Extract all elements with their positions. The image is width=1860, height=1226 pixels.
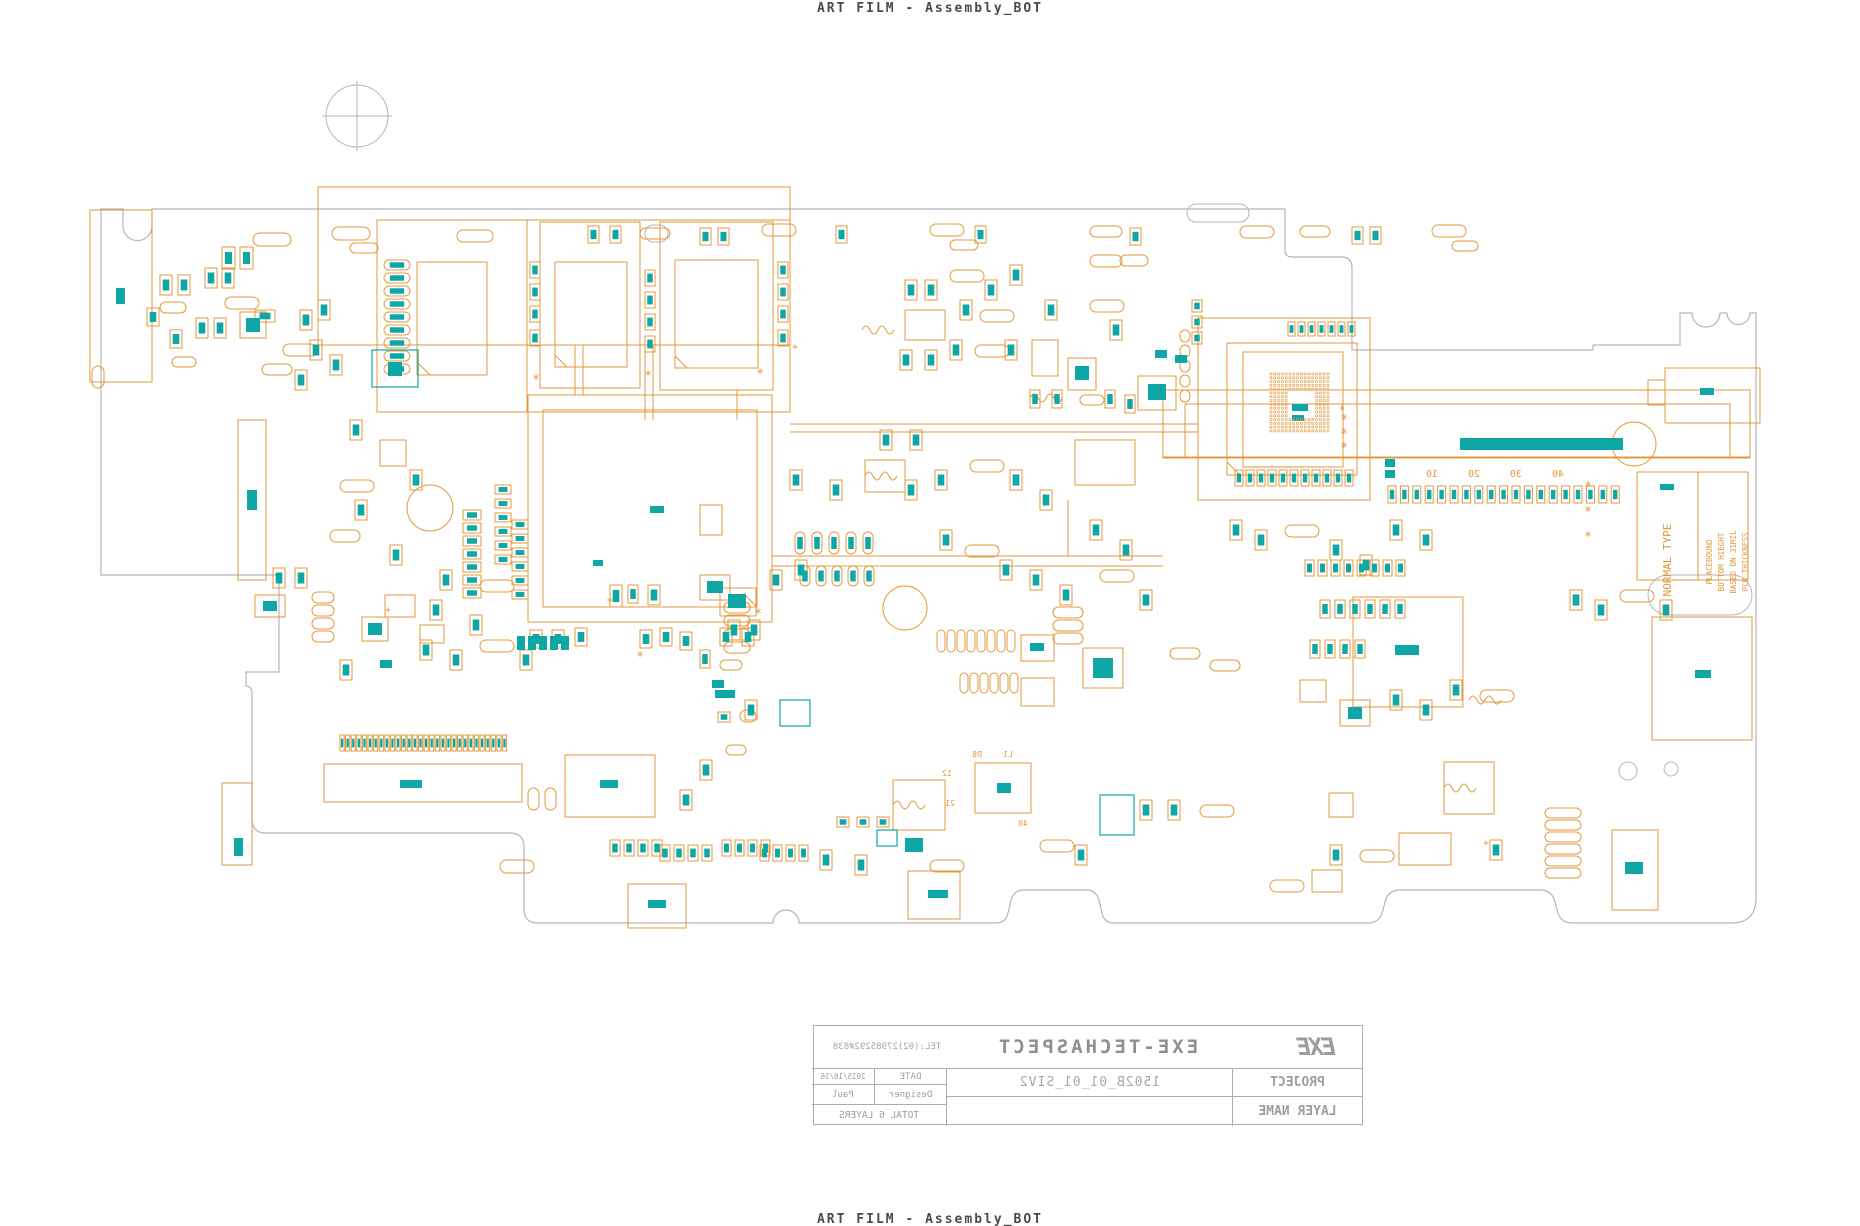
smd-pad <box>1310 325 1314 333</box>
bga-ball <box>1312 377 1314 379</box>
smd-pad <box>390 314 404 320</box>
smd-pad <box>715 690 735 698</box>
component-stadium <box>1053 607 1083 618</box>
smd-pad <box>390 366 404 372</box>
component-outline <box>865 460 905 492</box>
bga-ball <box>1278 430 1280 432</box>
smd-pad <box>797 537 803 549</box>
component-outline <box>1032 340 1058 376</box>
bga-ball <box>1316 415 1318 417</box>
smd-pad <box>390 275 404 281</box>
component-stadium <box>1053 620 1083 631</box>
smd-pad <box>1423 535 1430 546</box>
component-stadium <box>1210 660 1240 671</box>
bga-ball <box>1297 430 1299 432</box>
smd-pad <box>532 310 538 319</box>
origin-mark: + <box>1483 838 1489 849</box>
smd-pad <box>503 739 505 748</box>
bga-ball <box>1316 430 1318 432</box>
smd-pad <box>1354 231 1360 240</box>
component-outline-teal <box>877 830 897 846</box>
bga-ball <box>1274 373 1276 375</box>
component-stadium <box>1545 808 1581 818</box>
component-outline <box>1652 617 1752 740</box>
component-stadium <box>1180 390 1190 402</box>
bga-ball <box>1300 388 1302 390</box>
smd-pad <box>1563 490 1567 499</box>
component-stadium <box>1545 832 1581 842</box>
bga-ball <box>1293 373 1295 375</box>
bga-ball <box>1270 400 1272 402</box>
smd-pad <box>150 312 157 322</box>
bga-ball <box>1278 392 1280 394</box>
bga-ball <box>1323 411 1325 413</box>
bga-ball <box>1274 384 1276 386</box>
smd-pad <box>499 501 508 506</box>
smd-pad <box>814 537 820 549</box>
component-stadium <box>500 860 534 873</box>
bga-ball <box>1312 384 1314 386</box>
smd-pad <box>723 632 730 642</box>
bga-ball <box>1312 426 1314 428</box>
component-stadium <box>957 630 965 652</box>
assembly-asterisk: * <box>1584 505 1592 520</box>
component-stadium <box>960 673 968 693</box>
smd-pad <box>358 505 365 516</box>
bga-ball <box>1323 407 1325 409</box>
component-stadium <box>528 788 539 810</box>
smd-pad <box>662 849 668 858</box>
smd-pad <box>720 232 726 241</box>
bga-ball <box>1327 388 1329 390</box>
smd-pad <box>593 560 603 566</box>
component-stadium <box>980 673 988 693</box>
smd-pad <box>246 318 260 332</box>
origin-mark: + <box>792 342 798 353</box>
date-value: 2015/10/16 <box>812 1068 874 1084</box>
smd-pad <box>908 485 915 496</box>
smd-pad <box>408 739 410 748</box>
component-outline <box>905 310 945 340</box>
bga-ball <box>1319 400 1321 402</box>
bga-ball <box>1281 415 1283 417</box>
smd-pad <box>1340 325 1344 333</box>
smd-pad <box>1395 645 1419 655</box>
smd-pad <box>1382 604 1388 614</box>
smd-pad <box>413 475 420 486</box>
smd-pad <box>745 632 752 642</box>
smd-pad <box>1660 484 1674 490</box>
bga-ball <box>1281 419 1283 421</box>
smd-pad <box>943 535 950 546</box>
bga-ball <box>1293 426 1295 428</box>
bga-ball <box>1270 384 1272 386</box>
board-hole <box>1664 762 1678 776</box>
smd-pad <box>1320 325 1324 333</box>
smd-pad <box>1127 399 1133 409</box>
smd-pad <box>1043 495 1050 506</box>
component-outline <box>324 764 522 802</box>
bga-ball <box>1300 377 1302 379</box>
smd-pad <box>1385 470 1395 478</box>
smd-pad <box>802 571 808 582</box>
assembly-asterisk: * <box>636 650 644 665</box>
smd-pad <box>1346 564 1351 573</box>
component-stadium <box>950 270 984 282</box>
component-stadium <box>312 631 334 642</box>
smd-pad <box>1281 474 1285 483</box>
company-phone: TEL:(02)27985292#838 <box>816 1026 958 1068</box>
project-label: PROJECT <box>1232 1068 1362 1096</box>
smd-pad <box>453 739 455 748</box>
bga-ball <box>1281 411 1283 413</box>
smd-pad <box>321 305 328 316</box>
bga-ball <box>1278 373 1280 375</box>
smd-pad <box>1348 707 1362 719</box>
smd-pad <box>1350 325 1354 333</box>
component-stadium <box>1452 241 1478 251</box>
bga-ball <box>1285 381 1287 383</box>
smd-pad <box>442 739 444 748</box>
smd-pad <box>234 838 243 856</box>
trace-lines-layer <box>417 345 1750 607</box>
smd-pad <box>928 285 935 296</box>
smd-pad <box>1333 850 1340 861</box>
smd-pad <box>517 636 525 650</box>
bga-ball <box>1293 422 1295 424</box>
smd-pad <box>903 355 910 366</box>
smd-pad <box>1327 644 1333 654</box>
component-stadium <box>172 357 196 367</box>
bga-ball <box>1278 407 1280 409</box>
bga-ball <box>1323 381 1325 383</box>
bga-ball <box>1327 411 1329 413</box>
smd-pad <box>532 334 538 343</box>
bga-ball <box>1278 415 1280 417</box>
smd-pad <box>247 490 257 510</box>
smd-pad <box>390 288 404 294</box>
bga-ball <box>1274 400 1276 402</box>
smd-pad <box>630 589 636 599</box>
component-stadium <box>1000 673 1008 693</box>
bga-ball <box>1327 419 1329 421</box>
component-stadium <box>1090 300 1124 312</box>
smd-pad <box>414 739 416 748</box>
smd-pad <box>1032 394 1038 404</box>
smd-pad <box>1033 575 1040 586</box>
smd-pad <box>386 739 388 748</box>
smd-pad <box>1330 325 1334 333</box>
smd-pad <box>1415 490 1419 499</box>
bga-ball <box>1323 430 1325 432</box>
bga-ball <box>1297 377 1299 379</box>
smd-pad <box>780 334 786 343</box>
smd-pad <box>390 340 404 346</box>
ref-designator-mirrored: 12 <box>942 769 952 778</box>
bga-ball <box>1319 415 1321 417</box>
smd-pad <box>1601 490 1605 499</box>
component-stadium <box>1545 856 1581 866</box>
placebound-note-line: BOTTOM HIEGHT <box>1717 532 1726 591</box>
bga-ball <box>1270 407 1272 409</box>
component-stadium <box>950 240 978 250</box>
bga-ball <box>1297 388 1299 390</box>
smd-pad <box>436 739 438 748</box>
bga-ball <box>1327 384 1329 386</box>
smd-pad <box>883 435 890 446</box>
smd-pad <box>499 515 508 520</box>
component-stadium <box>970 460 1004 472</box>
bga-ball <box>1278 381 1280 383</box>
bga-ball <box>1308 430 1310 432</box>
smd-pad <box>487 739 489 748</box>
smd-pad <box>1452 490 1456 499</box>
smd-pad <box>793 475 800 486</box>
bga-ball <box>1297 373 1299 375</box>
smd-pad <box>801 849 806 858</box>
smd-pad <box>788 849 793 858</box>
smd-pad <box>1300 325 1304 333</box>
bga-ball <box>1270 377 1272 379</box>
component-stadium <box>987 630 995 652</box>
smd-pad <box>217 323 224 334</box>
assembly-asterisk: * <box>644 369 652 384</box>
bga-ball <box>1327 392 1329 394</box>
pin-number-mirrored: 10 <box>1426 469 1438 480</box>
bga-ball <box>1316 407 1318 409</box>
board-hole <box>1619 762 1637 780</box>
smd-pad <box>988 285 995 296</box>
placebound-note-line: PCB THICKNESS <box>1741 532 1750 591</box>
smd-pad <box>612 230 618 239</box>
smd-pad <box>1385 459 1395 467</box>
inductor-symbol <box>862 326 894 334</box>
bga-ball <box>1270 411 1272 413</box>
smd-pad <box>208 273 215 284</box>
bga-ball <box>1270 396 1272 398</box>
component-stadium <box>480 640 514 652</box>
bga-ball <box>1316 400 1318 402</box>
smd-pad <box>647 340 653 349</box>
bga-ball <box>1308 377 1310 379</box>
bga-ball <box>1327 407 1329 409</box>
smd-pad <box>499 543 508 548</box>
trace-line <box>1227 462 1240 475</box>
smd-pad <box>1337 604 1343 614</box>
component-outline <box>1185 404 1730 458</box>
smd-pad <box>1292 474 1296 483</box>
smd-pad <box>663 632 670 642</box>
bga-ball <box>1274 415 1276 417</box>
smd-pad <box>865 537 871 549</box>
component-stadium <box>980 310 1014 322</box>
bga-ball <box>1274 388 1276 390</box>
smd-pad <box>243 252 250 264</box>
bga-ball <box>1300 384 1302 386</box>
smd-pad <box>703 765 710 776</box>
bga-ball <box>1316 396 1318 398</box>
smd-pad <box>260 313 271 320</box>
smd-pad <box>358 739 360 748</box>
bga-ball <box>1289 430 1291 432</box>
bga-ball <box>1319 392 1321 394</box>
bga-ball <box>1297 422 1299 424</box>
smd-pad <box>590 230 596 239</box>
smd-pad <box>1393 695 1400 706</box>
component-outline <box>1665 368 1760 423</box>
bga-ball <box>1293 430 1295 432</box>
smd-pad <box>866 571 872 582</box>
smd-pad <box>1551 490 1555 499</box>
bga-ball <box>1289 419 1291 421</box>
total-layers-label: TOTAL 6 LAYERS <box>812 1104 946 1126</box>
smd-pad <box>848 537 854 549</box>
smd-pad <box>1123 545 1130 556</box>
bga-ball <box>1281 388 1283 390</box>
bga-ball <box>1274 396 1276 398</box>
smd-pad <box>380 739 382 748</box>
bga-ball <box>1304 377 1306 379</box>
component-stadium <box>975 345 1009 357</box>
designer-value: Paul <box>812 1084 874 1104</box>
component-stadium <box>332 227 370 240</box>
bga-ball <box>1323 392 1325 394</box>
smd-pad <box>626 844 632 853</box>
smd-pad <box>938 475 945 486</box>
smd-pad <box>464 739 466 748</box>
smd-pad <box>470 739 472 748</box>
assembly-asterisk: * <box>1584 530 1592 545</box>
smd-pad <box>647 274 653 283</box>
smd-pad <box>1194 319 1200 326</box>
component-stadium <box>1053 633 1083 644</box>
smd-pad <box>1372 231 1378 240</box>
smd-pad <box>1030 643 1044 651</box>
component-stadium <box>350 243 378 253</box>
bga-ball <box>1308 426 1310 428</box>
smd-pad <box>1194 303 1200 310</box>
smd-pad <box>298 375 305 386</box>
bga-ball <box>1274 392 1276 394</box>
smd-pad <box>459 739 461 748</box>
smd-pad <box>467 577 477 583</box>
smd-pad <box>1333 545 1340 556</box>
smd-pad <box>775 849 780 858</box>
smd-pad <box>447 739 449 748</box>
bga-ball <box>1281 392 1283 394</box>
smd-pad <box>481 739 483 748</box>
bga-ball <box>1289 388 1291 390</box>
component-outline <box>417 262 487 375</box>
normal-type-label: NORMAL TYPE <box>1661 524 1674 597</box>
bga-ball <box>1312 430 1314 432</box>
bga-ball <box>1281 422 1283 424</box>
smd-pad <box>728 594 746 608</box>
smd-pad <box>467 512 477 518</box>
smd-pad <box>276 573 283 584</box>
bga-ball <box>1278 396 1280 398</box>
smd-pad <box>707 581 723 593</box>
bga-ball <box>1308 422 1310 424</box>
bga-ball <box>1270 415 1272 417</box>
bga-ball <box>1300 373 1302 375</box>
smd-pad <box>516 564 525 569</box>
component-stadium <box>1100 570 1134 582</box>
component-stadium <box>1170 648 1200 659</box>
bga-ball <box>1300 430 1302 432</box>
smd-pad <box>1132 232 1138 241</box>
smd-pad <box>647 318 653 327</box>
smd-pad <box>1398 564 1403 573</box>
bga-ball <box>1289 426 1291 428</box>
component-stadium <box>997 630 1005 652</box>
smd-pad <box>647 296 653 305</box>
component-outline <box>1648 380 1665 405</box>
component-stadium <box>947 630 955 652</box>
component-stadium <box>1545 868 1581 878</box>
smd-pad <box>225 252 232 264</box>
bga-ball <box>1285 392 1287 394</box>
smd-pad <box>834 571 840 582</box>
bga-ball <box>1285 415 1287 417</box>
smd-pad <box>731 625 738 636</box>
component-stadium <box>970 673 978 693</box>
company-logo: EXE <box>1278 1028 1356 1066</box>
bga-ball <box>1319 419 1321 421</box>
page-title-bottom: ART FILM - Assembly_BOT <box>0 1212 1860 1226</box>
smd-pad <box>303 315 310 326</box>
smd-pad <box>539 636 547 650</box>
smd-pad <box>423 645 430 656</box>
component-stadium <box>967 630 975 652</box>
pin-number-mirrored: 30 <box>1510 469 1522 480</box>
assembly-asterisk: * <box>1584 480 1592 495</box>
bga-ball <box>1274 430 1276 432</box>
smd-pad <box>1143 805 1150 816</box>
smd-pad <box>650 506 664 513</box>
smd-pad <box>561 636 569 650</box>
bga-ball <box>1281 381 1283 383</box>
component-outline <box>675 260 758 368</box>
smd-pad <box>1312 644 1318 654</box>
smd-pad <box>425 739 427 748</box>
smd-pad <box>173 334 180 344</box>
art-film-page: ART FILM - Assembly_BOT NORMAL TYPEPLACE… <box>0 0 1860 1226</box>
component-stadium <box>930 224 964 236</box>
smd-pad <box>1063 590 1070 601</box>
component-stadium <box>724 642 750 653</box>
bga-ball <box>1300 426 1302 428</box>
smd-pad <box>433 605 440 616</box>
bga-ball <box>1285 407 1287 409</box>
smd-pad <box>838 230 844 239</box>
bga-ball <box>1270 373 1272 375</box>
component-stadium <box>283 344 317 356</box>
bga-ball <box>1274 426 1276 428</box>
component-outline <box>1329 793 1353 817</box>
smd-pad <box>1320 564 1325 573</box>
smd-pad <box>1359 564 1364 573</box>
smd-pad <box>913 435 920 446</box>
smd-pad <box>1390 490 1394 499</box>
smd-pad <box>1270 474 1274 483</box>
smd-pad <box>1008 345 1015 356</box>
smd-pad <box>724 844 729 853</box>
bga-ball <box>1319 411 1321 413</box>
bga-ball-grid <box>1270 373 1329 432</box>
smd-pad <box>773 575 780 586</box>
bga-ball <box>1285 396 1287 398</box>
